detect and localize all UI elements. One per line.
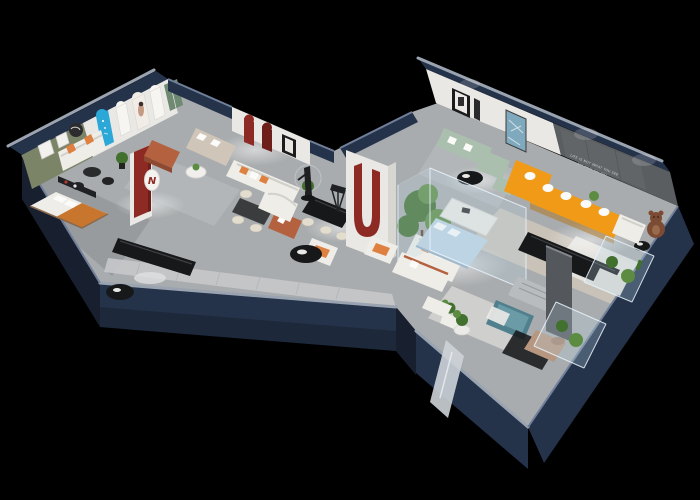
black-oval-table [290, 245, 322, 263]
art-detail [458, 97, 464, 106]
statue-base [301, 195, 315, 201]
shelf-deco [64, 180, 67, 183]
sofa-pillow [561, 192, 572, 200]
sofa-pillow [525, 172, 536, 180]
table-plant [453, 310, 461, 318]
teddy-bear-belly [652, 225, 660, 235]
case-plant [556, 320, 568, 332]
black-oval-table [106, 284, 134, 300]
table-plant [193, 164, 200, 171]
case-plant [569, 333, 583, 347]
potted-plant [116, 152, 128, 164]
red-arch-top [244, 115, 254, 125]
decal-mark [102, 120, 104, 122]
sofa-plant [589, 191, 599, 201]
dining-chair [240, 190, 252, 198]
dining-chair [320, 226, 332, 234]
dining-chair [302, 218, 314, 226]
wall-spotlight [460, 79, 480, 89]
sofa-pillow [581, 200, 592, 208]
dining-chair [250, 224, 262, 232]
table-tray [297, 250, 307, 255]
sign-letter: N [148, 176, 157, 187]
isometric-floorplan: LIFE IS NOT WHAT YOU SEE BUT WHAT YOU FE… [0, 0, 700, 500]
case-plant [621, 269, 635, 283]
teddy-bear-eye [657, 216, 659, 218]
teddy-bear-eye [653, 216, 655, 218]
black-chair [102, 177, 114, 185]
wall-spotlight [632, 154, 656, 166]
dining-chair [232, 216, 244, 224]
case-plant [606, 256, 618, 268]
poster-figure-hair [139, 102, 144, 107]
table-tray [462, 174, 470, 178]
coffee-table [83, 167, 101, 177]
red-arch-top [262, 123, 272, 133]
plant-table [454, 325, 470, 335]
thin-frame-art [474, 98, 480, 121]
sofa-pillow [599, 208, 610, 216]
shelf-deco [73, 184, 76, 187]
plant-pot [119, 163, 125, 169]
showroom-render: LIFE IS NOT WHAT YOU SEE BUT WHAT YOU FE… [0, 0, 700, 500]
floor-mat [134, 272, 166, 284]
wall-spotlight [574, 128, 598, 140]
glass-pane-side [398, 168, 430, 266]
decal-mark [104, 127, 106, 129]
round-wall-art [69, 123, 83, 137]
table-tray [113, 288, 121, 292]
sofa-pillow [543, 184, 554, 192]
